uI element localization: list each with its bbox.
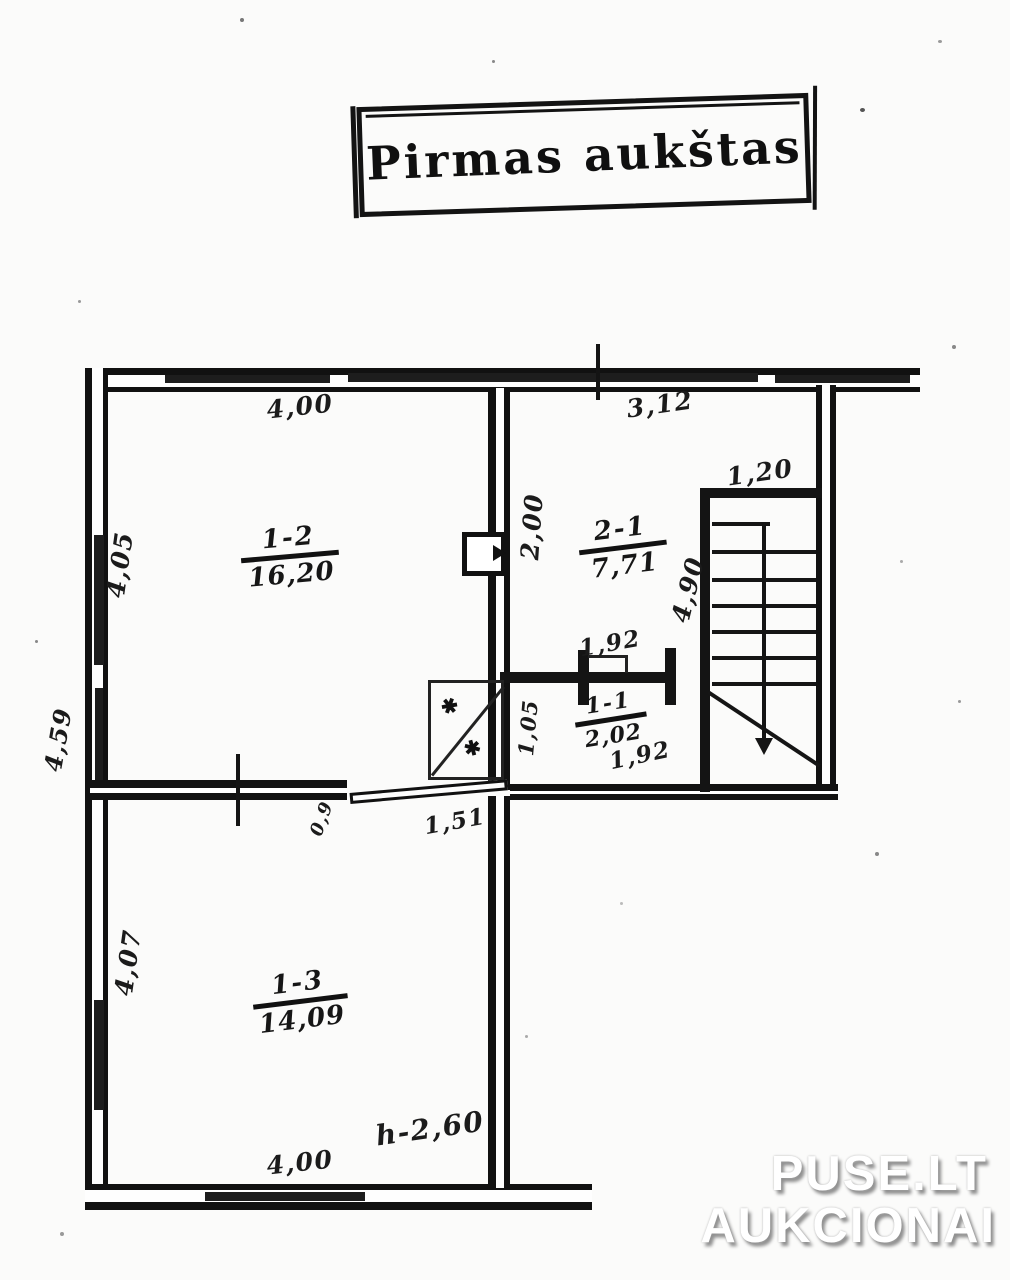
scan-speckle <box>938 40 942 43</box>
page-title: Pirmas aukštas <box>365 119 803 190</box>
wall-horizontal-left <box>90 780 347 800</box>
scan-speckle <box>620 902 623 905</box>
stairs-direction-arrow <box>755 738 773 755</box>
scan-speckle <box>525 1035 528 1038</box>
scan-speckle <box>900 560 903 563</box>
door-leaf <box>350 779 508 804</box>
stove-icon <box>493 545 506 561</box>
scan-speckle <box>60 1232 64 1236</box>
watermark-site: PUSE.LT <box>771 1146 988 1202</box>
scan-speckle <box>492 60 495 63</box>
scan-speckle <box>78 300 81 303</box>
wall-horizontal-right <box>510 784 838 800</box>
window-left-3 <box>94 1000 104 1110</box>
scan-speckle <box>952 345 956 349</box>
window-top-3 <box>775 375 910 383</box>
scan-speckle <box>240 18 244 22</box>
window-left-2 <box>95 688 103 780</box>
window-top-1 <box>165 375 330 383</box>
room-label-1-2: 1-2 16,20 <box>222 519 357 594</box>
window-top-2 <box>348 373 758 382</box>
wall-exterior-right <box>816 385 836 793</box>
dim-room13-width: 4,00 <box>239 1142 361 1183</box>
dimension-tick-top <box>596 344 600 400</box>
window-bottom-1 <box>205 1192 365 1201</box>
door-jamb-right <box>665 648 676 705</box>
room-label-1-3: 1-3 14,09 <box>232 962 369 1041</box>
scan-speckle <box>958 700 961 703</box>
watermark-brand: AUKCIONAI <box>700 1198 996 1254</box>
stair-center-line <box>762 522 766 740</box>
dim-hall-door: 1,92 <box>558 622 661 666</box>
room-label-2-1: 2-1 7,71 <box>562 509 684 587</box>
scan-speckle <box>860 108 865 112</box>
floor-plan-page: Pirmas aukštas ✱ ✱ 4,00 3,12 1,20 <box>0 0 1010 1280</box>
title-box-stroke <box>350 106 359 218</box>
dim-room13-height: 4,07 <box>106 906 150 1019</box>
title-box-stroke <box>366 101 800 118</box>
dim-room11-height: 1,05 <box>511 677 545 779</box>
scan-speckle <box>875 852 879 856</box>
dim-outer-left: 4,59 <box>35 688 81 792</box>
dim-midwall-height: 2,00 <box>514 471 551 583</box>
dimension-leader <box>625 655 628 673</box>
title-box-stroke <box>813 86 817 210</box>
scan-speckle <box>35 640 38 643</box>
title-box: Pirmas aukštas <box>356 93 811 217</box>
dimension-tick-wall <box>236 754 240 826</box>
